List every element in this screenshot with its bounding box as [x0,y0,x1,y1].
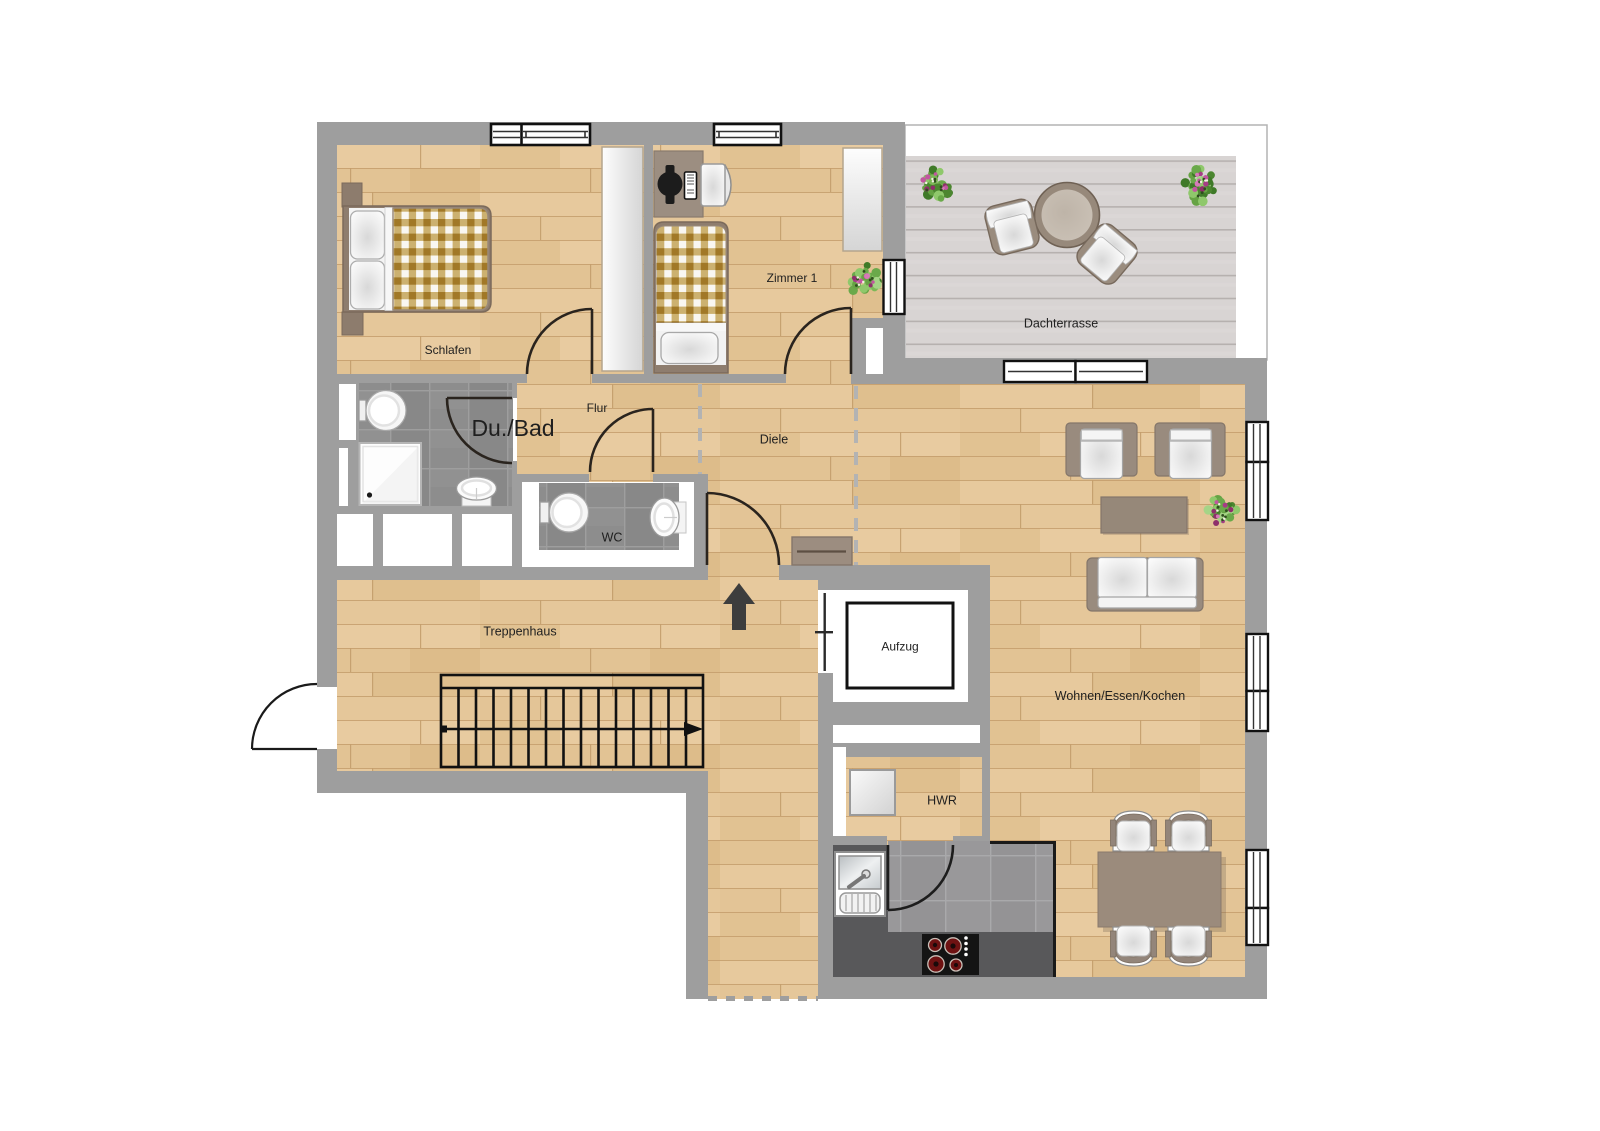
svg-text:Du./Bad: Du./Bad [471,415,554,441]
svg-text:WC: WC [602,531,623,545]
svg-text:Aufzug: Aufzug [881,640,918,654]
svg-text:Zimmer 1: Zimmer 1 [767,271,818,285]
svg-text:HWR: HWR [927,794,957,808]
svg-text:Diele: Diele [760,433,789,447]
svg-text:Schlafen: Schlafen [425,343,472,357]
svg-text:Treppenhaus: Treppenhaus [483,625,556,639]
svg-text:Flur: Flur [587,401,608,415]
svg-text:Dachterrasse: Dachterrasse [1024,317,1098,331]
svg-text:Wohnen/Essen/Kochen: Wohnen/Essen/Kochen [1055,689,1185,703]
